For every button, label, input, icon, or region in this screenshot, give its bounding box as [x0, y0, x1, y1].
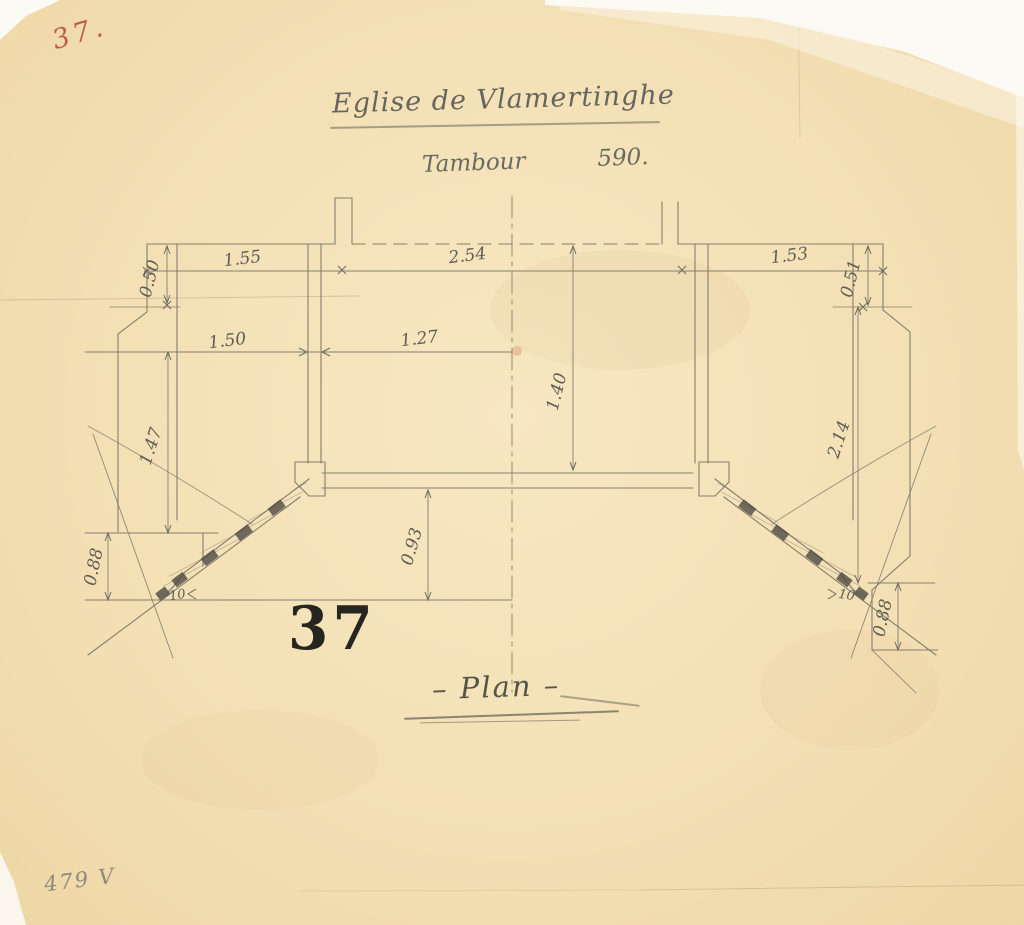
dim-mid-left: 1.50 — [207, 329, 247, 353]
dim-left-jamb: 0.50 — [136, 258, 165, 300]
paper-stains — [140, 250, 940, 810]
subtitle-number: 590. — [597, 144, 649, 172]
subtitle-word: Tambour — [422, 148, 526, 178]
dim-right-wall: 2.14 — [824, 418, 855, 461]
plan-drawing: 1.55 2.54 1.53 0.50 0.51 1.50 1.27 1.40 … — [0, 0, 1024, 925]
plan-linework — [85, 196, 938, 693]
dim-mid-center: 1.27 — [399, 327, 439, 351]
dim-top-center: 2.54 — [446, 244, 487, 269]
dim-top-left: 1.55 — [222, 247, 262, 271]
dim-bottom-left: 0.88 — [80, 546, 107, 587]
dim-right-jamb: 0.51 — [837, 258, 866, 300]
dimension-labels: 1.55 2.54 1.53 0.50 0.51 1.50 1.27 1.40 … — [80, 244, 896, 639]
dim-bottom-center: 0.93 — [397, 526, 427, 568]
dim-bottom-right: 0.88 — [869, 597, 896, 638]
plan-caption: – Plan – — [431, 668, 560, 706]
dim-center-height: 1.40 — [543, 371, 572, 413]
dim-wall-thickness-right: 10 — [837, 587, 856, 604]
drawing-sheet: 1.55 2.54 1.53 0.50 0.51 1.50 1.27 1.40 … — [0, 0, 1024, 925]
dim-left-wall: 1.47 — [136, 425, 167, 467]
dim-top-right: 1.53 — [769, 244, 809, 268]
dim-wall-thickness-left: 10 — [168, 587, 187, 604]
sheet-number-stamp: 37 — [288, 593, 377, 664]
